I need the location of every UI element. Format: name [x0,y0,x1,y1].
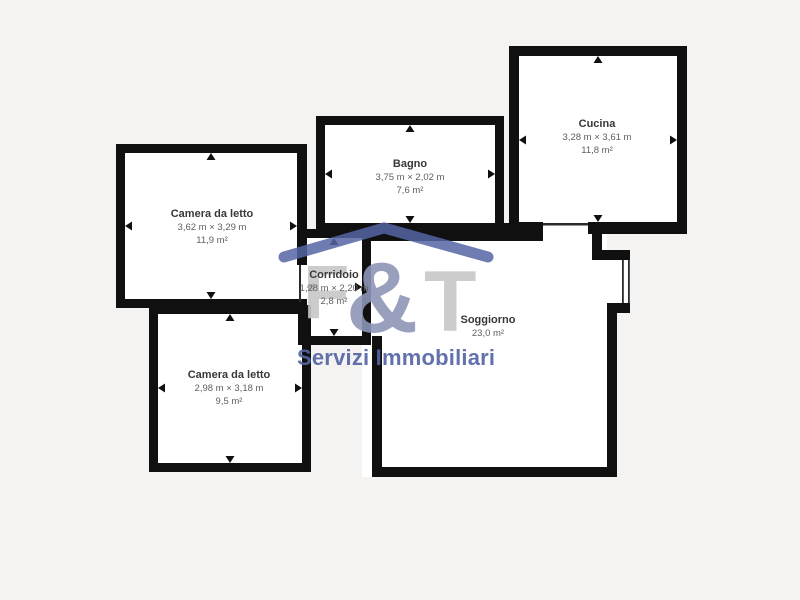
room-name: Cucina [563,118,632,131]
room-dimensions: 3,75 m × 2,02 m [376,172,445,184]
room-label-bagno: Bagno 3,75 m × 2,02 m 7,6 m² [376,158,445,197]
room-label-soggiorno: Soggiorno 23,0 m² [461,314,516,340]
window-line-soggiorno-outer [622,260,624,303]
room-name: Camera da letto [171,208,254,221]
room-area: 11,9 m² [171,235,254,247]
room-label-camera-da-letto-2: Camera da letto 2,98 m × 3,18 m 9,5 m² [188,369,271,408]
room-name: Corridoio [300,269,369,282]
room-label-camera-da-letto-1: Camera da letto 3,62 m × 3,29 m 11,9 m² [171,208,254,247]
room-dimensions: 2,98 m × 3,18 m [188,383,271,395]
room-area: 7,6 m² [376,185,445,197]
room-name: Camera da letto [188,369,271,382]
watermark-tagline: Servizi Immobiliari [297,345,495,371]
room-area: 9,5 m² [188,396,271,408]
room-area: 23,0 m² [461,328,516,340]
room-name: Soggiorno [461,314,516,327]
window-line-soggiorno-inner [628,260,630,303]
room-dimensions: 3,62 m × 3,29 m [171,222,254,234]
room-label-corridoio: Corridoio 1,28 m × 2,20 m 2,8 m² [300,269,369,308]
room-label-cucina: Cucina 3,28 m × 3,61 m 11,8 m² [563,118,632,157]
room-dimensions: 3,28 m × 3,61 m [563,132,632,144]
room-dimensions: 1,28 m × 2,20 m [300,283,369,295]
room-area: 11,8 m² [563,145,632,157]
room-name: Bagno [376,158,445,171]
room-area: 2,8 m² [300,296,369,308]
floor-plan-canvas: F & T Servizi Immobiliari Camera da lett… [0,0,800,600]
door-line-cucina-soggiorno [543,223,588,226]
